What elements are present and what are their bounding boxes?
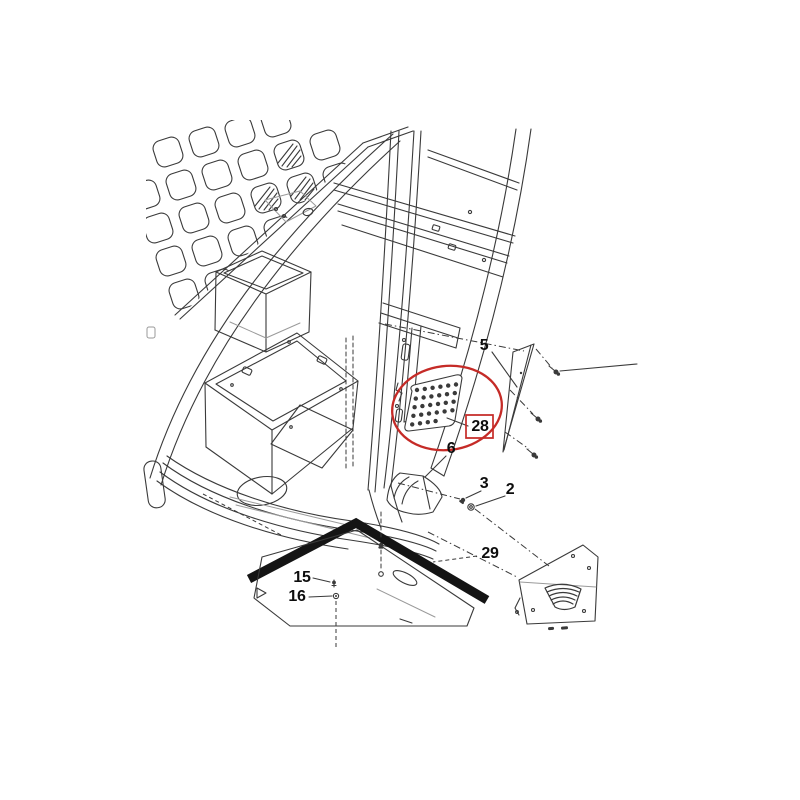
left-pillar-tube bbox=[147, 134, 400, 485]
bolt-part-3 bbox=[459, 491, 481, 504]
seat-box bbox=[205, 333, 358, 494]
washer-part-16 bbox=[309, 593, 339, 648]
diagram-artwork bbox=[0, 0, 800, 800]
b-pillar-tubes bbox=[368, 131, 421, 528]
rear-frame-rails bbox=[334, 150, 519, 348]
part-label-15: 15 bbox=[293, 569, 310, 587]
part-label-2: 2 bbox=[506, 481, 515, 499]
part-label-3: 3 bbox=[480, 475, 489, 493]
fastener-part-15 bbox=[313, 578, 336, 587]
panel-part-5 bbox=[492, 344, 637, 459]
storage-bin bbox=[215, 251, 311, 352]
trim-strip-part-29 bbox=[249, 523, 487, 600]
part-label-5: 5 bbox=[480, 337, 489, 355]
diagram-page: 5 28 6 3 2 29 15 16 bbox=[0, 0, 800, 800]
grille-panel bbox=[515, 545, 598, 630]
part-label-6: 6 bbox=[447, 440, 456, 458]
part-label-29: 29 bbox=[481, 545, 498, 563]
washer-part-2 bbox=[468, 496, 505, 510]
grille-vent bbox=[545, 584, 581, 609]
part-label-28: 28 bbox=[471, 418, 488, 436]
part-label-16: 16 bbox=[288, 588, 305, 606]
